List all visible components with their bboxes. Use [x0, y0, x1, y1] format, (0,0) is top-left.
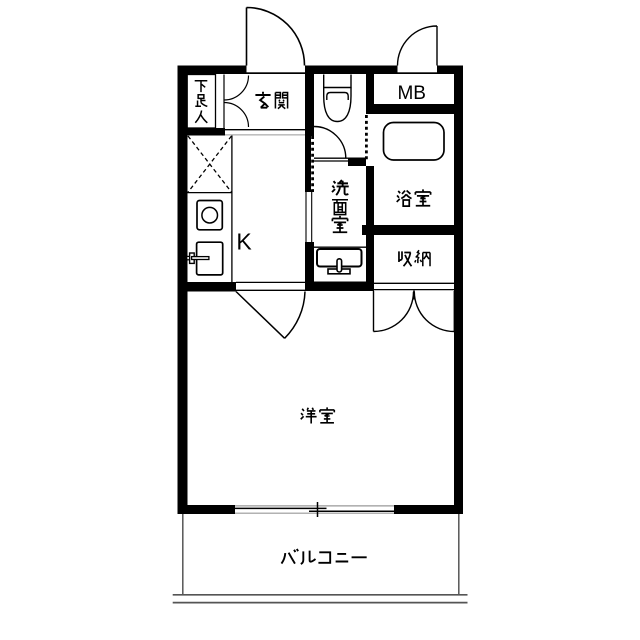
svg-text:MB: MB — [397, 83, 426, 104]
svg-text:K: K — [236, 228, 252, 254]
